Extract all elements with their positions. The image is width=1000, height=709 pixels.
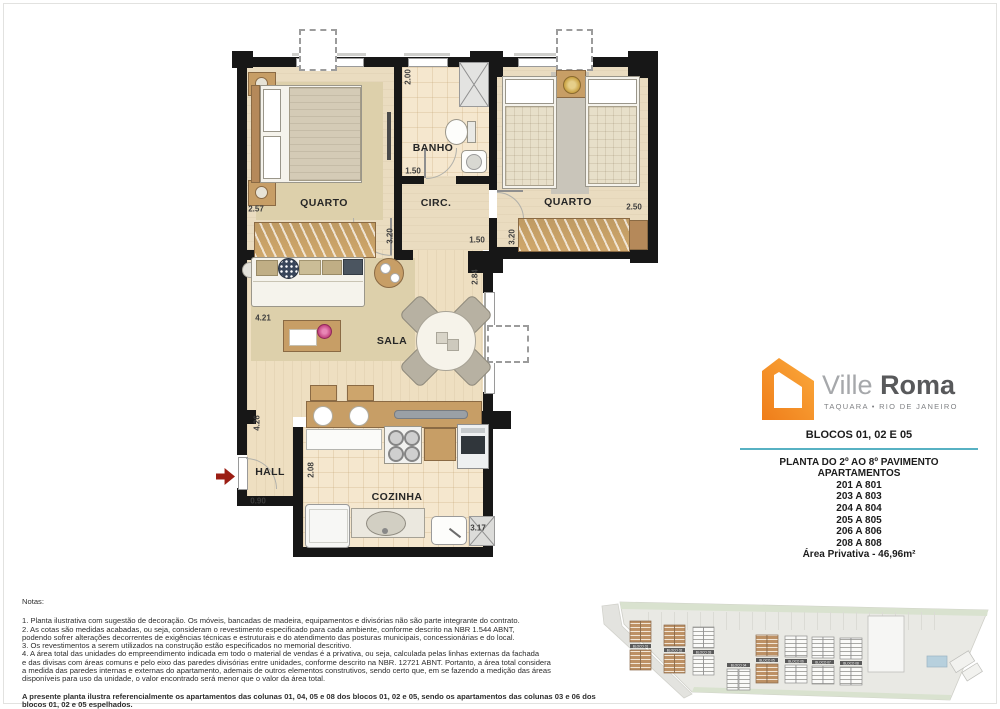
wall-kitchen-bottom [293, 547, 493, 557]
svg-text:BLOCO 06: BLOCO 06 [788, 659, 804, 663]
floor-plan: QUARTO BANHO CIRC. QUARTO SALA HALL COZI… [0, 0, 700, 600]
laundry-tank [431, 516, 467, 545]
place-setting [313, 406, 333, 426]
sofa-cushion [256, 260, 278, 276]
ac-box-bedroom2 [556, 29, 593, 71]
place-setting [349, 406, 369, 426]
wardrobe-side-cabinet [629, 220, 648, 250]
sofa-seat-line [253, 281, 363, 282]
wall-bedroom1-bathroom [394, 57, 402, 250]
sofa-cushion [343, 259, 363, 275]
site-cluster-bloco-01: BLOCO 01 [630, 621, 651, 670]
room-label-bedroom1: QUARTO [300, 197, 348, 209]
coffee-table-flowers [317, 324, 332, 339]
kitchen-faucet [382, 528, 388, 534]
dim-bathroom-depth: 2.00 [404, 69, 413, 85]
stove-burner [404, 446, 420, 462]
notes-heading: Notas: [22, 598, 597, 606]
svg-text:BLOCO 02: BLOCO 02 [667, 648, 683, 652]
bed-pillow [263, 136, 281, 179]
tv-panel [387, 112, 391, 160]
sofa-cushion [299, 260, 321, 275]
note-line: disponíveis para uso da unidade, o valor… [22, 675, 597, 683]
site-clubhouse [868, 616, 904, 672]
dim-circulation-width: 1.50 [469, 236, 485, 245]
bed-pillow [588, 79, 637, 104]
info-panel: BLOCOS 01, 02 E 05 PLANTA DO 2º AO 8º PA… [740, 430, 978, 561]
bed-blanket [588, 106, 637, 184]
bar-stool [347, 385, 374, 401]
unit-range: 201 A 801 [740, 480, 978, 492]
bathroom-sink-bowl [466, 154, 482, 170]
brand-name-bold: Roma [880, 370, 955, 400]
washing-machine-lid [309, 509, 348, 543]
room-label-kitchen: COZINHA [372, 491, 423, 503]
dim-bathroom-width: 1.50 [405, 167, 421, 176]
sofa-cushion [322, 260, 342, 275]
unit-range: 203 A 803 [740, 491, 978, 503]
unit-range: 208 A 808 [740, 538, 978, 550]
svg-text:BLOCO 04: BLOCO 04 [731, 663, 747, 667]
bed-blanket [289, 87, 361, 181]
room-label-hall: HALL [255, 466, 285, 478]
nightstand-lamp [563, 76, 581, 94]
dim-living-width: 4.21 [255, 314, 271, 323]
room-label-circulation: CIRC. [421, 197, 452, 209]
kitchen-cabinet [424, 428, 456, 461]
svg-text:BLOCO 05: BLOCO 05 [759, 658, 775, 662]
plan-title: PLANTA DO 2º AO 8º PAVIMENTO [740, 457, 978, 469]
wall-bathroom-bedroom2 [489, 57, 497, 184]
dim-bedroom2-width: 2.50 [626, 203, 642, 212]
ville-roma-logo-icon [758, 358, 816, 422]
counter-tray [394, 410, 468, 419]
dim-living-height: 2.84 [471, 269, 480, 285]
site-cluster-bloco-06: BLOCO 06 [785, 636, 807, 683]
wall-bathroom-bottom-a [402, 176, 424, 184]
site-pool [927, 656, 947, 667]
entrance-arrow [216, 468, 235, 485]
dim-kitchen-width: 3.17 [470, 524, 486, 533]
toilet-tank [467, 121, 476, 143]
dim-bedroom2-depth: 3.20 [508, 229, 517, 245]
side-table-cup [390, 273, 400, 283]
private-area: Área Privativa - 46,96m² [740, 549, 978, 561]
wall-circ-bedroom2-b [489, 218, 497, 251]
svg-text:BLOCO 03: BLOCO 03 [696, 650, 712, 654]
site-cluster-bloco-07: BLOCO 07 [812, 637, 834, 684]
blocks-title: BLOCOS 01, 02 E 05 [740, 430, 978, 442]
shower-x [460, 63, 488, 106]
kitchen-counter [306, 429, 382, 450]
bar-stool [310, 385, 337, 401]
wall-kitchen-left [293, 427, 303, 557]
dim-living-left-height: 4.26 [253, 415, 262, 431]
dim-hall-width: 0.90 [250, 497, 266, 506]
unit-range: 206 A 806 [740, 526, 978, 538]
svg-text:BLOCO 01: BLOCO 01 [633, 644, 649, 648]
notes-block: Notas: 1. Planta ilustrativa com sugestã… [22, 598, 597, 709]
side-table-cup [380, 263, 391, 274]
bed-blanket [505, 106, 554, 186]
coffee-table-tray [289, 329, 317, 346]
nightstand-lamp [255, 186, 268, 199]
fridge-door [461, 436, 485, 454]
unit-range: 205 A 805 [740, 515, 978, 527]
room-label-bathroom: BANHO [413, 142, 454, 154]
brand-tagline: TAQUARA • RIO DE JANEIRO [824, 402, 958, 411]
unit-range: 204 A 804 [740, 503, 978, 515]
room-label-bedroom2: QUARTO [544, 196, 592, 208]
brand-name-light: Ville [822, 370, 873, 400]
bed-headboard [251, 85, 260, 183]
wall-bathroom-bottom-b [456, 176, 489, 184]
shower-box [459, 62, 489, 107]
accent-divider [740, 448, 978, 450]
sofa-cushion-pattern [278, 258, 299, 279]
site-cluster-bloco-08: BLOCO 08 [840, 638, 862, 685]
side-table [374, 258, 404, 288]
ac-box-bedroom1 [299, 29, 337, 71]
fridge-top [461, 428, 485, 433]
dim-bedroom1-width: 2.57 [248, 205, 264, 214]
bed-pillow [505, 79, 554, 104]
floorplan-page: { "plan": { "rooms": { "quarto1": "QUART… [0, 0, 1000, 707]
wall-circ-stub [394, 250, 413, 260]
svg-text:BLOCO 07: BLOCO 07 [815, 660, 831, 664]
wardrobe [518, 218, 630, 252]
site-cluster-bloco-02: BLOCO 02 [664, 625, 685, 673]
room-label-living: SALA [377, 335, 407, 347]
site-plan: BLOCO 01 BLOCO 02 BLOCO 03 BLOCO 04 BLOC… [596, 592, 994, 704]
wardrobe [254, 222, 376, 258]
brand-wordmark: Ville Roma [822, 370, 955, 401]
site-cluster-bloco-03: BLOCO 03 [693, 627, 714, 675]
svg-text:BLOCO 08: BLOCO 08 [843, 661, 859, 665]
wall-living-right-lower [483, 392, 493, 418]
dim-bedroom1-depth: 3.20 [386, 228, 395, 244]
bed-pillow [263, 89, 281, 132]
brand-block: Ville Roma TAQUARA • RIO DE JANEIRO [740, 356, 980, 426]
stove-burner [404, 430, 420, 446]
wall-circ-bedroom2-a [489, 184, 497, 190]
stove-burner [388, 446, 404, 462]
wall-bedroom2-right [648, 57, 658, 247]
plan-subtitle: APARTAMENTOS [740, 468, 978, 480]
bathroom-window [408, 58, 448, 67]
site-cluster-bloco-05: BLOCO 05 [756, 635, 778, 683]
bathroom-window-sill [404, 53, 450, 56]
stove-burner [388, 430, 404, 446]
dim-kitchen-depth: 2.08 [307, 462, 316, 478]
ac-box-living [487, 325, 529, 363]
dining-napkin [447, 339, 459, 351]
